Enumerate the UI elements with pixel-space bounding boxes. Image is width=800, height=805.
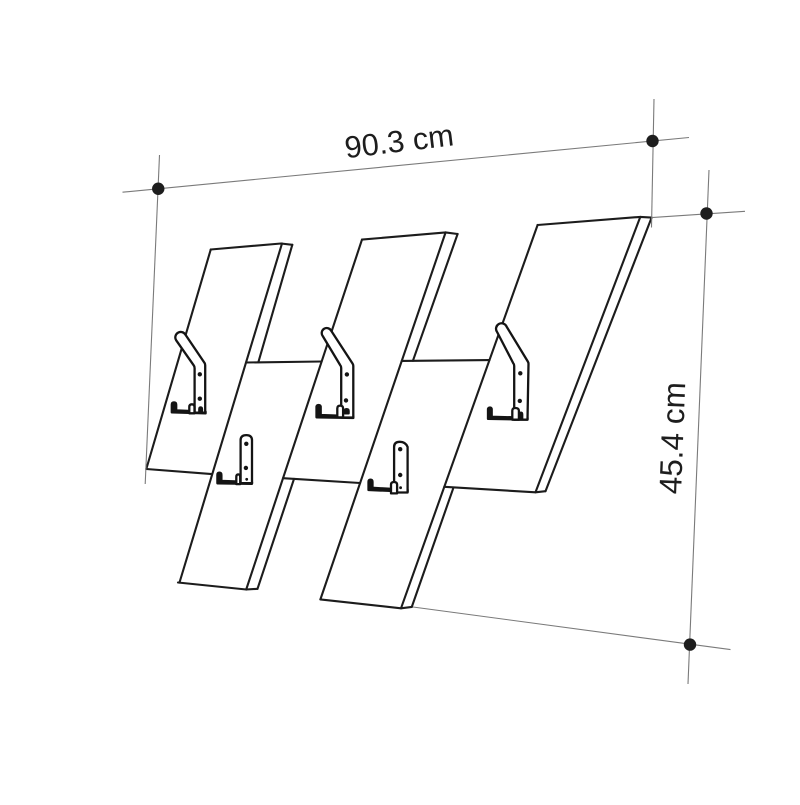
svg-text:45.4 cm: 45.4 cm bbox=[652, 381, 692, 494]
